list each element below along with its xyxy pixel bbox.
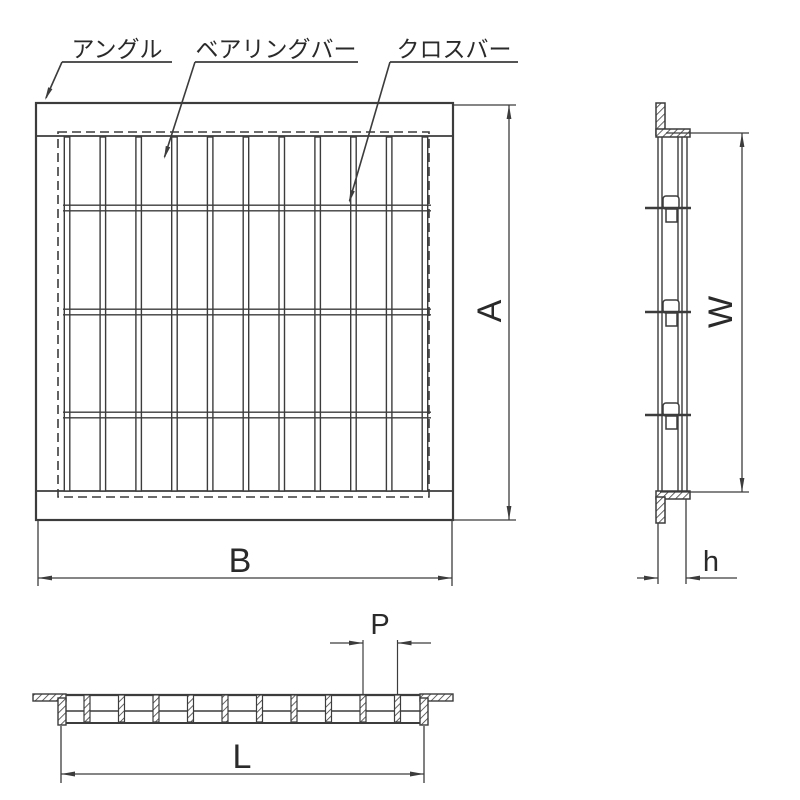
dim-b-label: B bbox=[229, 542, 252, 580]
bearing-bar bbox=[243, 137, 249, 491]
bearing-bar bbox=[172, 137, 178, 491]
bearing-bar-section bbox=[360, 695, 366, 722]
cross-bar-end bbox=[645, 196, 691, 222]
dim-p: P bbox=[330, 609, 431, 694]
callout-bearing-bar-label: ベアリングバー bbox=[196, 36, 357, 62]
bearing-bar-sections bbox=[84, 695, 401, 722]
bearing-bar bbox=[279, 137, 285, 491]
bearing-bar-section bbox=[119, 695, 125, 722]
cross-bar-end-clip-inner bbox=[666, 313, 677, 326]
dim-l: L bbox=[61, 726, 424, 783]
bearing-bar-section bbox=[84, 695, 90, 722]
right-angle-vertical-leg bbox=[420, 698, 428, 725]
front-view: アングル ベアリングバー クロスバー A bbox=[36, 36, 518, 586]
grating-drawing: アングル ベアリングバー クロスバー A bbox=[0, 0, 800, 800]
dim-h: h bbox=[637, 499, 737, 584]
cross-bar-end-clip-inner bbox=[666, 209, 677, 222]
dim-b-arrow-right bbox=[438, 576, 452, 581]
bearing-bar-section bbox=[291, 695, 297, 722]
bearing-bar bbox=[100, 137, 106, 491]
dim-h-arrow-right bbox=[686, 576, 700, 581]
dim-a-arrow-top bbox=[507, 105, 512, 119]
bearing-bar bbox=[422, 137, 428, 491]
bearing-bar-section bbox=[395, 695, 401, 722]
bottom-view: P L bbox=[33, 609, 453, 783]
drawing-sheet: アングル ベアリングバー クロスバー A bbox=[0, 0, 800, 800]
bearing-bar-section bbox=[222, 695, 228, 722]
bearing-bar bbox=[64, 137, 70, 491]
left-angle-vertical-leg bbox=[58, 698, 66, 725]
dim-w-label: W bbox=[702, 296, 740, 328]
callout-cross-bar-label: クロスバー bbox=[397, 36, 512, 62]
dim-a-arrow-bottom bbox=[507, 506, 512, 520]
dim-w-arrow-bottom bbox=[740, 478, 745, 492]
bearing-bar-section bbox=[326, 695, 332, 722]
dim-p-arrow-right bbox=[398, 641, 412, 646]
bearing-bar bbox=[207, 137, 213, 491]
bearing-bar-section bbox=[257, 695, 263, 722]
callout-angle-arrow bbox=[45, 87, 52, 100]
bearing-bar bbox=[386, 137, 392, 491]
callout-angle-label: アングル bbox=[71, 36, 162, 62]
dim-l-label: L bbox=[233, 738, 252, 776]
dim-a: A bbox=[453, 105, 516, 520]
side-view: W h bbox=[637, 103, 749, 584]
bearing-bar-section bbox=[153, 695, 159, 722]
dim-p-arrow-left bbox=[349, 641, 363, 646]
dim-p-label: P bbox=[370, 609, 389, 641]
bottom-angle-vertical-leg bbox=[656, 497, 665, 523]
dim-w-arrow-top bbox=[740, 133, 745, 147]
cross-bar-end bbox=[645, 403, 691, 429]
dim-b: B bbox=[38, 521, 452, 586]
dim-b-arrow-left bbox=[38, 576, 52, 581]
dim-l-arrow-left bbox=[61, 772, 75, 777]
dim-h-arrow-left bbox=[644, 576, 658, 581]
dim-l-arrow-right bbox=[410, 772, 424, 777]
bearing-bar bbox=[315, 137, 321, 491]
dim-a-label: A bbox=[471, 299, 509, 322]
cross-bar-end-clip-inner bbox=[666, 416, 677, 429]
bearing-bar bbox=[136, 137, 142, 491]
dim-h-label: h bbox=[703, 546, 719, 578]
callout-angle: アングル bbox=[45, 36, 172, 100]
cross-bar-end bbox=[645, 300, 691, 326]
bearing-bar-section bbox=[188, 695, 194, 722]
